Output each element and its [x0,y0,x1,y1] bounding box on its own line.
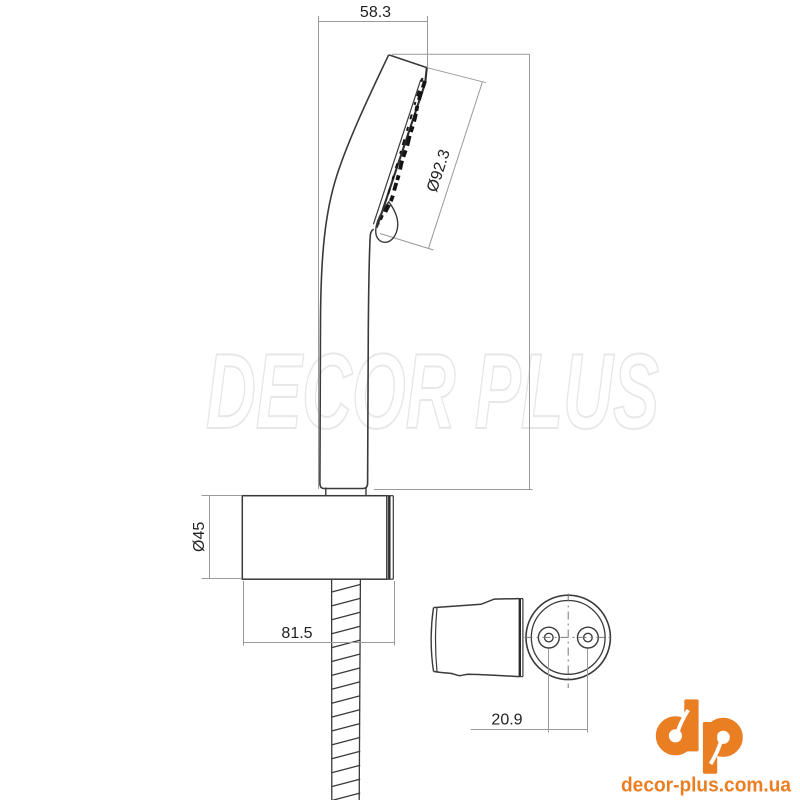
svg-text:58.3: 58.3 [360,4,391,21]
svg-text:20.9: 20.9 [491,712,522,729]
svg-text:Ø45: Ø45 [191,522,208,552]
svg-text:decor-plus.com.ua: decor-plus.com.ua [621,775,792,797]
svg-text:DECOR PLUS: DECOR PLUS [206,332,659,452]
svg-text:81.5: 81.5 [281,625,312,642]
svg-text:Ø92.3: Ø92.3 [424,147,454,194]
